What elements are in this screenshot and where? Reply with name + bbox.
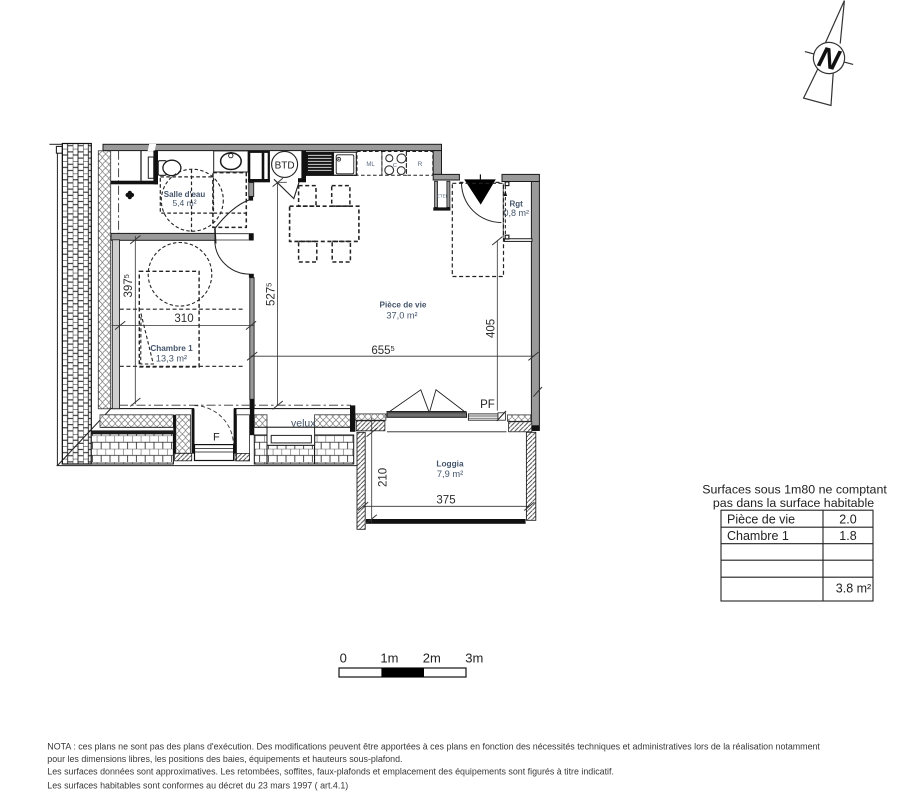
svg-text:Pièce de vie: Pièce de vie	[727, 513, 795, 527]
svg-text:Pièce de vie: Pièce de vie	[380, 301, 427, 310]
svg-text:NOTA : ces plans ne sont pas d: NOTA : ces plans ne sont pas des plans d…	[47, 742, 820, 752]
svg-text:37,0 m²: 37,0 m²	[386, 311, 417, 321]
svg-text:310: 310	[174, 313, 193, 325]
svg-text:5,4 m²: 5,4 m²	[172, 198, 196, 208]
svg-text:Chambre 1: Chambre 1	[150, 344, 193, 353]
svg-text:BTD: BTD	[275, 160, 295, 171]
svg-text:2m: 2m	[423, 651, 441, 666]
svg-text:ML: ML	[366, 162, 375, 168]
svg-text:1.8: 1.8	[839, 529, 856, 543]
svg-text:PF: PF	[480, 399, 495, 411]
svg-text:405: 405	[486, 319, 498, 338]
svg-text:0,8 m²: 0,8 m²	[504, 208, 530, 218]
svg-text:velux: velux	[291, 417, 316, 429]
svg-text:13,3 m²: 13,3 m²	[156, 354, 187, 364]
svg-text:Loggia: Loggia	[436, 459, 464, 469]
svg-text:C: C	[393, 163, 397, 169]
svg-text:210: 210	[378, 468, 390, 487]
svg-text:R: R	[418, 161, 423, 168]
svg-text:0: 0	[340, 651, 347, 666]
svg-text:Surfaces sous 1m80 ne comptant: Surfaces sous 1m80 ne comptant	[702, 483, 887, 497]
svg-text:ETEL: ETEL	[437, 194, 449, 199]
svg-text:Rgt: Rgt	[510, 199, 524, 208]
svg-text:Les surfaces données sont appr: Les surfaces données sont approximatives…	[47, 766, 614, 776]
svg-text:3.8 m²: 3.8 m²	[836, 582, 871, 596]
svg-text:F: F	[213, 432, 220, 444]
svg-text:3m: 3m	[465, 651, 483, 666]
svg-text:pas dans la surface habitable: pas dans la surface habitable	[713, 496, 874, 510]
svg-text:7,9 m²: 7,9 m²	[437, 469, 463, 479]
svg-text:375: 375	[436, 495, 455, 507]
svg-text:Les surfaces habitables sont c: Les surfaces habitables sont conformes a…	[47, 780, 348, 790]
svg-text:1m: 1m	[380, 651, 398, 666]
svg-text:pour les dimensions libres, le: pour les dimensions libres, les position…	[47, 754, 402, 764]
svg-text:Chambre 1: Chambre 1	[727, 529, 789, 543]
svg-text:2.0: 2.0	[839, 513, 856, 527]
